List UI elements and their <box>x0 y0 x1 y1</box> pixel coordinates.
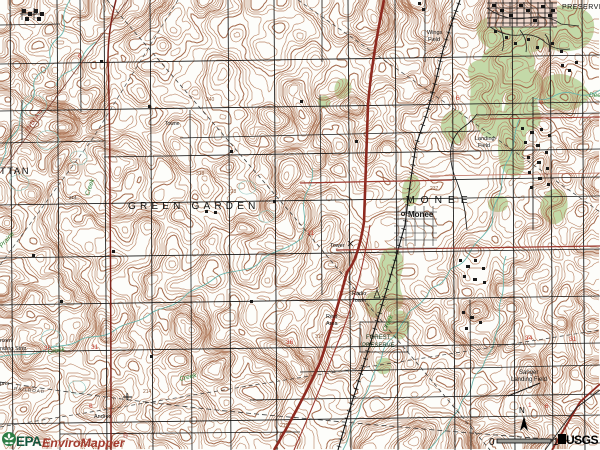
svg-text:pris: pris <box>0 381 9 387</box>
svg-text:GREEN GARDEN: GREEN GARDEN <box>128 201 260 212</box>
svg-text:Deer: Deer <box>589 92 600 99</box>
svg-text:1: 1 <box>528 402 532 409</box>
svg-text:Tower: Tower <box>352 298 367 304</box>
svg-text:Sanger: Sanger <box>519 370 538 376</box>
svg-text:Monee: Monee <box>408 210 434 219</box>
svg-text:Landing: Landing <box>475 136 495 142</box>
svg-text:Radio: Radio <box>352 291 366 297</box>
svg-text:219: 219 <box>280 423 289 429</box>
svg-text:nsen: nsen <box>0 338 12 344</box>
svg-text:Tower: Tower <box>330 243 345 249</box>
svg-text:6: 6 <box>89 403 93 410</box>
svg-text:220: 220 <box>465 420 474 426</box>
svg-text:Rest: Rest <box>326 314 338 320</box>
svg-text:nding Strip: nding Strip <box>0 346 26 352</box>
svg-text:Field: Field <box>478 143 490 149</box>
svg-text:EnviroMapper: EnviroMapper <box>42 436 126 450</box>
svg-text:237: 237 <box>430 186 439 192</box>
svg-text:®: ® <box>123 432 129 440</box>
svg-text:34: 34 <box>525 335 533 342</box>
svg-text:Field: Field <box>428 37 440 43</box>
svg-text:317: 317 <box>315 334 324 340</box>
svg-text:6: 6 <box>540 99 544 106</box>
svg-text:PRESERVE: PRESERVE <box>562 4 600 11</box>
svg-text:6: 6 <box>456 95 460 102</box>
svg-text:TTAN: TTAN <box>0 166 30 177</box>
svg-text:N: N <box>519 406 525 415</box>
svg-text:USGS: USGS <box>566 433 599 447</box>
svg-text:214: 214 <box>143 389 152 395</box>
svg-text:31: 31 <box>91 344 99 351</box>
svg-text:318: 318 <box>196 171 205 177</box>
svg-text:Landing Field: Landing Field <box>511 377 547 383</box>
svg-text:214: 214 <box>69 195 77 200</box>
svg-text:376: 376 <box>583 118 592 124</box>
svg-text:36: 36 <box>44 345 52 352</box>
svg-text:240: 240 <box>206 97 215 103</box>
svg-text:36: 36 <box>286 339 294 346</box>
svg-text:Towne: Towne <box>165 121 180 127</box>
svg-text:Wings: Wings <box>427 30 443 36</box>
svg-text:228: 228 <box>228 189 237 195</box>
svg-text:FOREST: FOREST <box>366 335 391 341</box>
svg-text:PRESERVE: PRESERVE <box>362 343 395 349</box>
svg-text:Andres: Andres <box>94 414 112 420</box>
svg-text:EPA: EPA <box>16 434 42 449</box>
svg-text:6: 6 <box>545 403 549 410</box>
svg-text:31: 31 <box>307 230 315 237</box>
svg-text:Area: Area <box>326 321 339 327</box>
svg-text:0: 0 <box>489 437 495 448</box>
svg-text:MONEE: MONEE <box>406 194 474 206</box>
svg-text:31: 31 <box>569 336 577 343</box>
svg-text:6: 6 <box>78 53 82 60</box>
